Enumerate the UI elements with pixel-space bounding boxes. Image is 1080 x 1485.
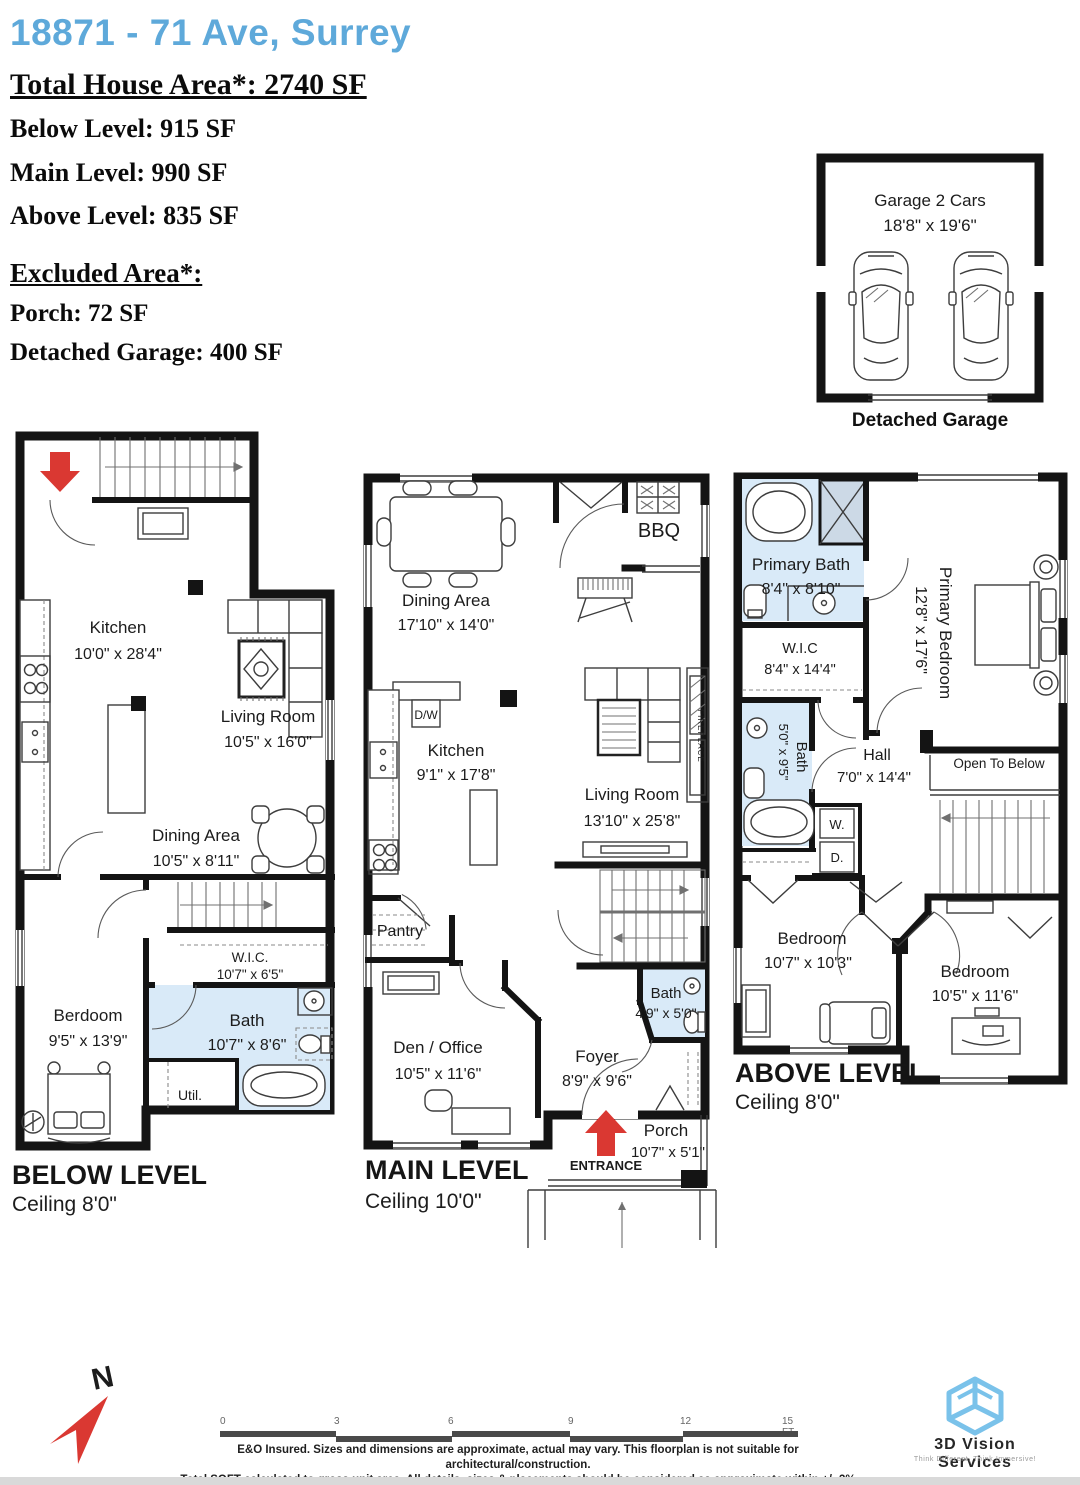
scale-tick: 0 xyxy=(220,1416,226,1427)
below-area-line: Below Level: 915 SF xyxy=(10,114,236,144)
dining-table-icon xyxy=(252,806,324,873)
tv-console-icon xyxy=(583,842,687,857)
main-dining-dims: 17'10" x 14'0" xyxy=(398,617,495,634)
above-dryer-label: D. xyxy=(831,850,844,865)
main-foyer-dims: 8'9" x 9'6" xyxy=(562,1073,632,1090)
bathtub-icon xyxy=(744,800,814,844)
above-bed1-dims: 10'7" x 10'3" xyxy=(764,955,852,972)
sink-icon xyxy=(747,718,767,738)
toilet-icon xyxy=(744,768,764,798)
below-level-plan: Kitchen 10'0" x 28'4" Living Room 10'5" … xyxy=(5,423,345,1155)
car-icon xyxy=(949,252,1013,380)
main-pantry-label: Pantry xyxy=(377,923,423,940)
compass-needle-icon xyxy=(50,1396,108,1464)
main-level-title: MAIN LEVEL xyxy=(365,1155,529,1186)
below-util-label: Util. xyxy=(178,1087,202,1103)
logo-name: 3D Vision Services xyxy=(895,1436,1055,1472)
total-area-line: Total House Area*: 2740 SF xyxy=(10,68,367,102)
below-kitchen-label: Kitchen xyxy=(90,618,147,637)
above-wic-dims: 8'4" x 14'4" xyxy=(764,662,835,678)
main-level-ceiling: Ceiling 10'0" xyxy=(365,1190,482,1214)
below-bath-label: Bath xyxy=(230,1011,265,1030)
main-bath-dims: 4'9" x 5'0" xyxy=(635,1005,696,1021)
logo-cube-icon xyxy=(943,1376,1007,1436)
main-porch-label: Porch xyxy=(644,1121,688,1140)
floorplan-page: 18871 - 71 Ave, Surrey Total House Area*… xyxy=(0,0,1080,1485)
bathtub-icon xyxy=(746,483,812,541)
bed-icon xyxy=(820,1002,890,1044)
excluded-area-title: Excluded Area*: xyxy=(10,258,202,289)
logo-tagline: Think Different, Think Immersive! xyxy=(895,1456,1055,1463)
main-living-label: Living Room xyxy=(585,785,680,804)
scale-tick: 6 xyxy=(448,1416,454,1427)
above-hall-dims: 7'0" x 14'4" xyxy=(837,769,911,786)
main-kitchen-dims: 9'1" x 17'8" xyxy=(417,767,496,784)
bed-icon xyxy=(48,1062,110,1143)
above-bath-dims: 5'0" x 9'5" xyxy=(776,724,791,781)
scale-tick: 12 xyxy=(680,1416,691,1427)
above-hall-label: Hall xyxy=(863,747,891,764)
below-level-title: BELOW LEVEL xyxy=(12,1160,207,1191)
below-living-label: Living Room xyxy=(221,707,316,726)
compass-north-label: N xyxy=(89,1360,117,1397)
below-bath-dims: 10'7" x 8'6" xyxy=(208,1037,287,1054)
dining-table-icon xyxy=(377,481,515,587)
page-bottom-bar xyxy=(0,1477,1080,1485)
above-pbath-label: Primary Bath xyxy=(752,555,850,574)
main-level-plan: Dining Area 17'10" x 14'0" BBQ xyxy=(353,443,721,1255)
compass: N xyxy=(42,1358,137,1473)
below-wic-dims: 10'7" x 6'5" xyxy=(217,967,284,982)
main-fireplace-label: FIREPLACE xyxy=(696,709,705,762)
scale-bar: 0 3 6 9 12 15 FT xyxy=(220,1416,798,1446)
garage-room-dims: 18'8" x 19'6" xyxy=(883,216,976,235)
main-foyer-label: Foyer xyxy=(575,1047,619,1066)
below-bedroom-label: Berdoom xyxy=(54,1006,123,1025)
garage-caption: Detached Garage xyxy=(813,410,1047,432)
below-bedroom-dims: 9'5" x 13'9" xyxy=(49,1033,128,1050)
main-den-dims: 10'5" x 11'6" xyxy=(395,1066,482,1083)
main-den-label: Den / Office xyxy=(393,1038,482,1057)
porch-area-line: Porch: 72 SF xyxy=(10,300,148,328)
main-area-line: Main Level: 990 SF xyxy=(10,158,227,188)
above-washer-label: W. xyxy=(829,817,844,832)
above-level-plan: Primary Bath 8'4" x 8'10" W.I.C 8'4" x 1… xyxy=(726,463,1074,1091)
above-pbath-dims: 8'4" x 8'10" xyxy=(762,581,841,598)
disclaimer-line-1: E&O Insured. Sizes and dimensions are ap… xyxy=(168,1443,868,1473)
above-level-title: ABOVE LEVEL xyxy=(735,1058,926,1089)
main-dining-label: Dining Area xyxy=(402,591,490,610)
below-dining-label: Dining Area xyxy=(152,826,240,845)
above-area-line: Above Level: 835 SF xyxy=(10,201,239,231)
main-bbq-label: BBQ xyxy=(638,520,680,542)
garage-plan: Garage 2 Cars 18'8" x 19'6" xyxy=(813,148,1047,440)
scale-tick: 3 xyxy=(334,1416,340,1427)
above-bath-label: Bath xyxy=(793,742,810,773)
sink-icon xyxy=(684,978,700,994)
below-level-ceiling: Ceiling 8'0" xyxy=(12,1193,117,1217)
main-kitchen-label: Kitchen xyxy=(428,741,485,760)
above-pbed-dims: 12'8" x 17'6" xyxy=(912,586,929,674)
main-living-dims: 13'10" x 25'8" xyxy=(584,813,681,830)
below-dining-dims: 10'5" x 8'11" xyxy=(153,853,240,870)
garage-area-line: Detached Garage: 400 SF xyxy=(10,339,283,367)
below-living-dims: 10'5" x 16'0" xyxy=(224,734,312,751)
above-wic-label: W.I.C xyxy=(782,641,817,657)
scale-tick: 9 xyxy=(568,1416,574,1427)
main-porch-dims: 10'7" x 5'1" xyxy=(631,1144,705,1161)
below-wic-label: W.I.C. xyxy=(232,950,269,965)
bathtub-icon xyxy=(243,1065,325,1106)
main-bath-label: Bath xyxy=(651,985,682,1002)
car-icon xyxy=(849,252,913,380)
above-level-ceiling: Ceiling 8'0" xyxy=(735,1091,840,1115)
below-kitchen-dims: 10'0" x 28'4" xyxy=(74,646,162,663)
above-bed1-label: Bedroom xyxy=(778,929,847,948)
above-bed2-dims: 10'5" x 11'6" xyxy=(932,988,1019,1005)
garage-room-label: Garage 2 Cars xyxy=(874,191,986,210)
page-title: 18871 - 71 Ave, Surrey xyxy=(10,12,411,54)
above-pbed-label: Primary Bedroom xyxy=(936,567,955,699)
above-bed2-label: Bedroom xyxy=(941,962,1010,981)
above-open-below-label: Open To Below xyxy=(953,756,1045,771)
main-dw-label: D/W xyxy=(414,708,438,722)
bookshelf-icon xyxy=(742,985,770,1037)
